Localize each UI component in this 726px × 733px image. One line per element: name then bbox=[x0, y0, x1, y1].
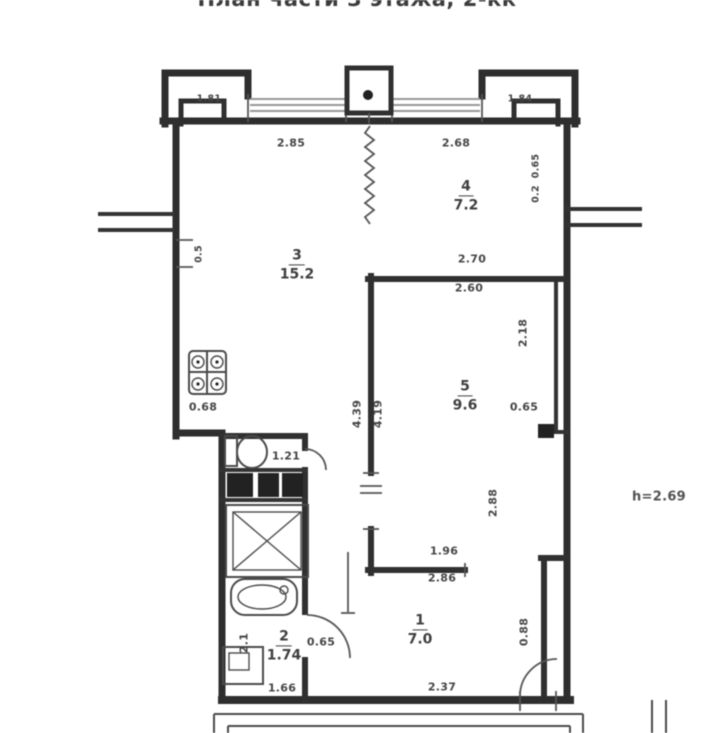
dimension-label: 2.1 bbox=[238, 633, 251, 653]
room-label-3: 3 15.2 bbox=[280, 244, 315, 283]
dimension-label: 2.88 bbox=[487, 489, 500, 517]
loggia-outline bbox=[214, 700, 666, 733]
dimension-label: 2.60 bbox=[455, 282, 483, 295]
dimension-label: 2.70 bbox=[458, 253, 486, 266]
toilet-icon bbox=[225, 436, 267, 468]
dimension-label: 0.5 bbox=[194, 245, 205, 263]
shower-icon bbox=[226, 505, 308, 577]
dimension-label: 4.39 bbox=[351, 400, 364, 428]
dimension-label: 0.68 bbox=[189, 401, 217, 414]
dimension-label: 1.96 bbox=[430, 545, 458, 558]
ceiling-height-note: h=2.69 bbox=[632, 490, 686, 505]
dimension-label: 1.81 bbox=[197, 94, 222, 105]
sink-icon bbox=[231, 579, 297, 615]
room-label-5: 5 9.6 bbox=[453, 375, 478, 414]
stove-icon bbox=[189, 351, 226, 394]
room-label-4: 4 7.2 bbox=[454, 175, 479, 214]
column-dot bbox=[363, 90, 373, 100]
dimension-label: 0.65 bbox=[531, 154, 542, 179]
shaft-block bbox=[282, 473, 303, 497]
dimension-label: 2.85 bbox=[277, 137, 305, 150]
entrance-door-arc bbox=[520, 659, 557, 696]
floor-plan: План части 3 этажа, 2-кк bbox=[0, 0, 726, 733]
dimension-label: 1.21 bbox=[272, 450, 300, 463]
dimension-label: 2.37 bbox=[428, 681, 456, 694]
room-label-2: 2 1.74 bbox=[267, 625, 302, 664]
duct-block bbox=[538, 424, 554, 438]
dimension-label: 2.68 bbox=[442, 137, 470, 150]
shaft-block bbox=[227, 473, 253, 497]
floor-plan-drawing bbox=[0, 0, 726, 733]
wc-door-arc bbox=[305, 449, 326, 470]
dimension-label: 0.65 bbox=[510, 401, 538, 414]
dimension-label: 1.66 bbox=[268, 682, 296, 695]
dimension-label: 1.84 bbox=[508, 94, 533, 105]
dimension-label: 2.18 bbox=[517, 319, 530, 347]
dimension-label: 2.86 bbox=[428, 572, 456, 585]
dimension-label: 4.19 bbox=[372, 400, 385, 428]
shaft-block bbox=[258, 473, 279, 497]
vent-column bbox=[347, 68, 391, 124]
interior-walls bbox=[176, 240, 567, 700]
room-label-1: 1 7.0 bbox=[408, 609, 433, 648]
dimension-label: 0.2 bbox=[531, 185, 542, 203]
partition-break-line bbox=[365, 126, 374, 224]
dimension-label: 0.88 bbox=[518, 618, 531, 646]
dimension-label: 0.65 bbox=[307, 636, 335, 649]
